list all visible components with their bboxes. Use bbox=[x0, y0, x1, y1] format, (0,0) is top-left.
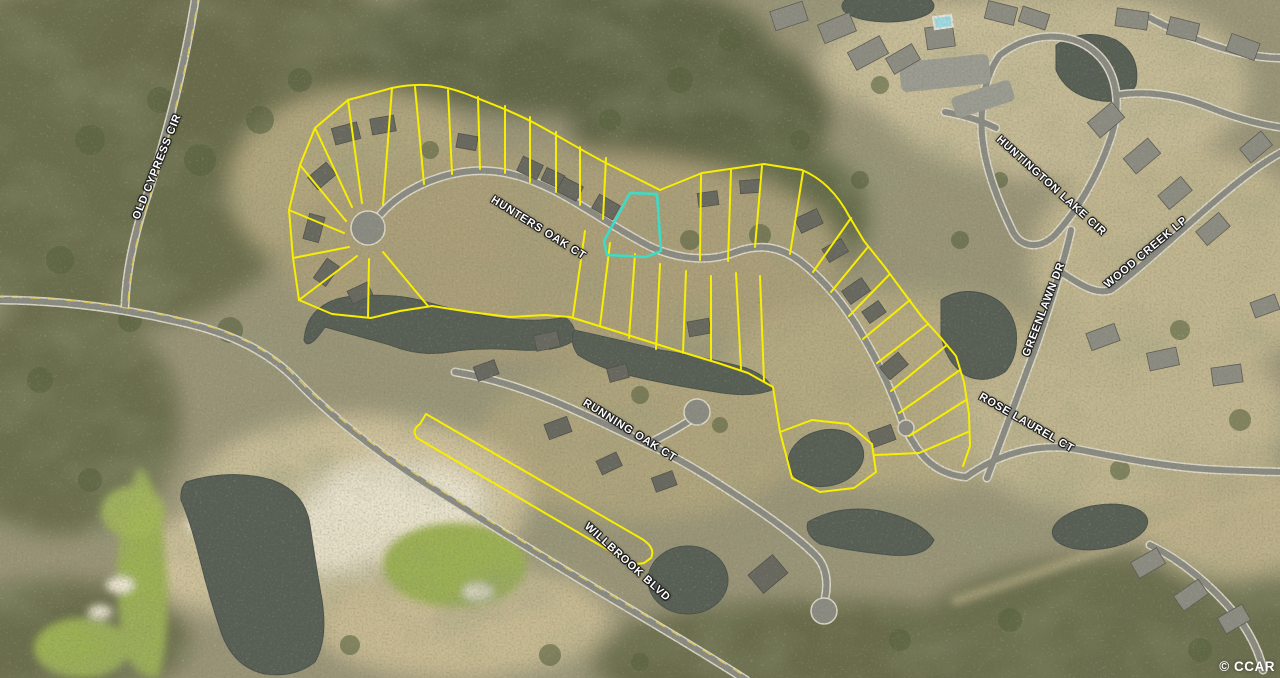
aerial-parcel-map: OLD CYPRESS CIR HUNTERS OAK CT RUNNING O… bbox=[0, 0, 1280, 678]
copyright-watermark: © CCAR bbox=[1219, 659, 1275, 674]
satellite-imagery bbox=[0, 0, 1280, 678]
